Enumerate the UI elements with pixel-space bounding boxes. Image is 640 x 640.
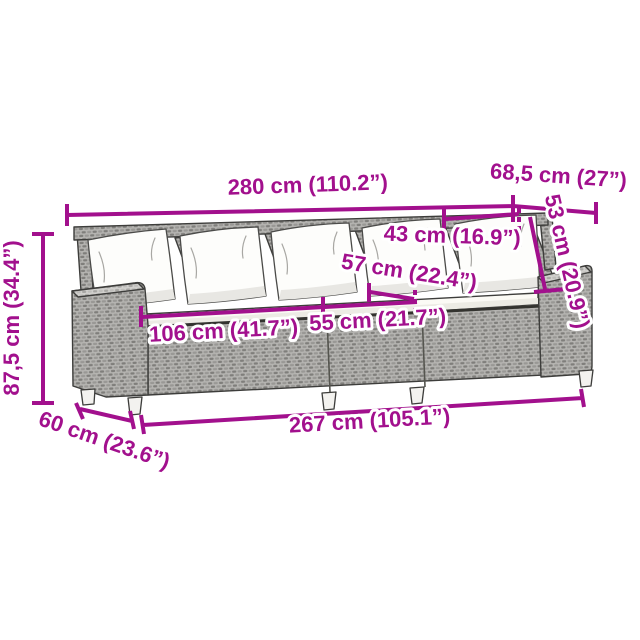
dimension-label-base-width: 267 cm (105.1”) [288,403,451,437]
dim-back-cushion-width: 43 cm (16.9”) [383,208,521,250]
dimension-label-overall-height: 87,5 cm (34.4”) [0,240,24,395]
leg-4 [410,387,424,404]
dim-base-depth: 60 cm (23.6”) [36,403,174,474]
product-dimension-diagram: 280 cm (110.2”) 68,5 cm (27”) 53 cm (20.… [0,0,640,640]
dim-overall-height: 87,5 cm (34.4”) [0,234,54,403]
dimension-label-back-cushion-width: 43 cm (16.9”) [383,221,521,251]
left-armrest-body [72,283,148,397]
dimension-line-overall-height [32,234,54,403]
leg-3 [322,392,336,410]
dimension-label-overall-width: 280 cm (110.2”) [227,169,388,200]
leg-1 [81,389,95,405]
pillow-2 [180,227,266,304]
dimension-label-overall-depth: 68,5 cm (27”) [489,158,627,192]
leg-5 [579,370,593,387]
dim-base-width: 267 cm (105.1”) [141,389,584,438]
left-armrest [72,283,148,397]
